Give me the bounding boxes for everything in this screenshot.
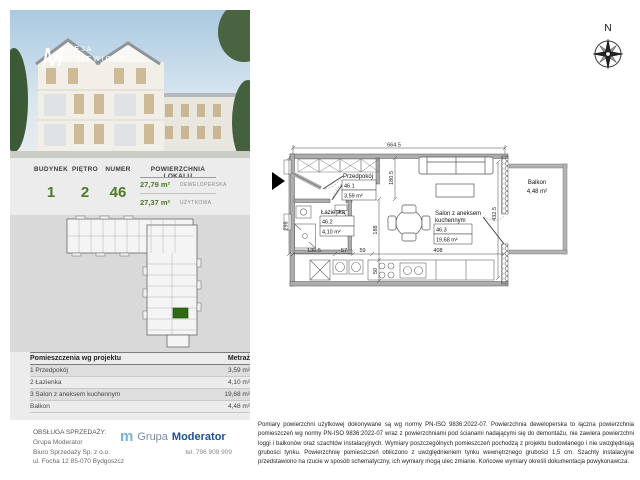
room-label-lazienka: Łazienka xyxy=(321,210,346,216)
sales-phone: tel. 796 909 909 xyxy=(120,449,232,456)
table-row: 3 Salon z aneksem kuchennym 19,68 m² xyxy=(30,389,250,401)
left-panel: M ALEJA MICKIEWICZA BUDYNEK PIĘTRO NUMER… xyxy=(10,10,250,420)
balcony-wall xyxy=(502,156,509,214)
brand-line2: MICKIEWICZA xyxy=(57,56,126,63)
selected-unit-marker xyxy=(173,308,188,318)
compass-north-label: N xyxy=(604,23,611,34)
room-name: Balkon xyxy=(30,403,50,410)
room-label-salon-2: kuchennym xyxy=(435,218,466,224)
sales-company: Grupa Moderator xyxy=(33,438,124,448)
table-row: 2 Łazienka 4,10 m² xyxy=(30,377,250,389)
legal-disclaimer: Pomiary powierzchni użytkowej dokonywane… xyxy=(258,421,634,467)
balkon-area: 4,48 m² xyxy=(527,189,547,195)
dim-hall: 180.5 xyxy=(389,171,395,185)
table-row: Balkon 4,48 m² xyxy=(30,401,250,413)
overview-plan xyxy=(10,215,250,352)
spec-header-numer: NUMER xyxy=(100,166,136,173)
table-row: 1 Przedpokój 3,59 m² xyxy=(30,365,250,377)
compass-icon: N xyxy=(586,20,630,76)
room-area: 3,59 m² xyxy=(344,194,363,200)
dim-left: 298 xyxy=(284,221,290,230)
room-area: 4,10 m² xyxy=(322,230,341,236)
logo-m-icon: m xyxy=(120,429,133,444)
spec-value-numer: 46 xyxy=(100,184,136,201)
rooms-table-header: Pomieszczenia wg projektu Metraż xyxy=(30,352,250,365)
rooms-header-area: Metraż xyxy=(228,355,250,362)
dim-bottom-2: 57 xyxy=(341,248,347,254)
sales-address: ul. Focha 12 85-070 Bydgoszcz xyxy=(33,457,124,467)
dim-mid-small: 50 xyxy=(373,268,379,274)
room-area: 19,68 m² xyxy=(224,391,250,398)
spec-header-pietro: PIĘTRO xyxy=(66,166,104,173)
spec-divider xyxy=(140,177,216,178)
dim-bottom-3: 59 xyxy=(359,248,365,254)
room-label-przedpokoj: Przedpokój xyxy=(343,174,373,180)
balcony xyxy=(509,164,567,254)
sales-office: Biuro Sprzedaży Sp. z o.o. xyxy=(33,448,124,458)
room-label-salon-1: Salon z aneksem xyxy=(435,211,481,217)
room-number: 46.2 xyxy=(322,220,333,226)
dim-bottom-1: 130.5 xyxy=(307,248,321,254)
dim-bottom-4: 408 xyxy=(433,248,442,254)
spec-area-divider xyxy=(140,193,216,194)
apartment-floor-plan: Przedpokój 46.1 3,59 m² Łazienka 46.2 4,… xyxy=(276,126,616,306)
dim-mid: 188 xyxy=(373,225,379,234)
brand-line1: ALEJA xyxy=(62,46,93,53)
logo-moderator-text: Moderator xyxy=(172,431,226,443)
area-developer-label: DEWELOPERSKA xyxy=(180,182,227,188)
room-name: 3 Salon z aneksem kuchennym xyxy=(30,391,120,398)
room-label-balkon: Balkon xyxy=(528,180,546,186)
grupa-moderator-logo: m Grupa Moderator xyxy=(120,429,226,444)
area-developer-value: 27,79 m² xyxy=(140,180,170,189)
rooms-header-name: Pomieszczenia wg projektu xyxy=(30,355,121,362)
sales-label: OBSŁUGA SPRZEDAŻY: xyxy=(33,428,124,438)
room-number: 46.1 xyxy=(344,184,355,190)
room-number: 46.3 xyxy=(436,228,447,234)
dim-top: 664.5 xyxy=(387,143,401,149)
room-area: 3,59 m² xyxy=(228,367,250,374)
sales-contact: OBSŁUGA SPRZEDAŻY: Grupa Moderator Biuro… xyxy=(33,428,124,467)
dim-right: 432.5 xyxy=(492,207,498,221)
building-photo: M ALEJA MICKIEWICZA xyxy=(10,10,250,158)
room-name: 1 Przedpokój xyxy=(30,367,68,374)
room-name: 2 Łazienka xyxy=(30,379,61,386)
area-usable-label: UŻYTKOWA xyxy=(180,200,211,206)
property-card-page: M ALEJA MICKIEWICZA BUDYNEK PIĘTRO NUMER… xyxy=(0,0,640,480)
logo-grupa-text: Grupa xyxy=(137,431,168,443)
room-area: 19,68 m² xyxy=(436,238,458,244)
area-usable-value: 27,37 m² xyxy=(140,198,170,207)
room-area: 4,10 m² xyxy=(228,379,250,386)
dining-table xyxy=(396,210,422,236)
room-area: 4,48 m² xyxy=(228,403,250,410)
rooms-table: Pomieszczenia wg projektu Metraż 1 Przed… xyxy=(30,352,250,413)
building-foot xyxy=(167,335,189,347)
spec-value-pietro: 2 xyxy=(66,184,104,201)
